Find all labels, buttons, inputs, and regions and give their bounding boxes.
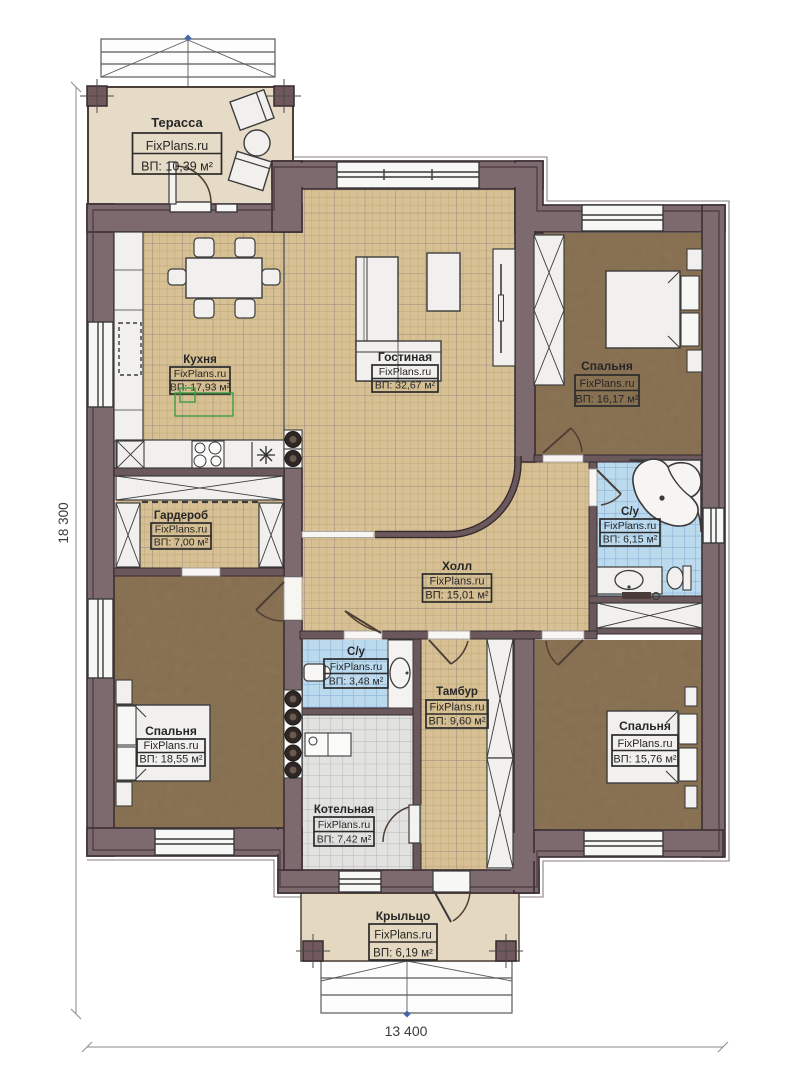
svg-text:FixPlans.ru: FixPlans.ru [330, 661, 383, 673]
svg-text:ВП: 6,19 м²: ВП: 6,19 м² [373, 948, 433, 960]
svg-text:FixPlans.ru: FixPlans.ru [604, 520, 657, 532]
svg-text:ВП: 10,39 м²: ВП: 10,39 м² [141, 160, 213, 174]
svg-text:Холл: Холл [442, 559, 472, 573]
svg-text:FixPlans.ru: FixPlans.ru [143, 740, 198, 752]
svg-text:FixPlans.ru: FixPlans.ru [374, 930, 432, 942]
svg-text:FixPlans.ru: FixPlans.ru [429, 576, 484, 588]
svg-text:FixPlans.ru: FixPlans.ru [579, 378, 634, 390]
svg-text:Спальня: Спальня [145, 724, 197, 738]
svg-text:FixPlans.ru: FixPlans.ru [318, 819, 371, 831]
svg-text:Гостиная: Гостиная [378, 350, 432, 364]
svg-text:ВП: 9,60 м²: ВП: 9,60 м² [428, 716, 485, 728]
svg-text:С/у: С/у [347, 646, 366, 658]
svg-text:Котельная: Котельная [314, 804, 374, 816]
svg-text:FixPlans.ru: FixPlans.ru [174, 368, 227, 380]
svg-text:С/у: С/у [621, 506, 640, 518]
svg-text:ВП: 7,42 м²: ВП: 7,42 м² [317, 834, 372, 846]
svg-text:FixPlans.ru: FixPlans.ru [429, 702, 484, 714]
svg-text:Спальня: Спальня [581, 359, 633, 373]
svg-text:FixPlans.ru: FixPlans.ru [146, 139, 209, 153]
svg-text:ВП: 16,17 м²: ВП: 16,17 м² [575, 394, 639, 406]
svg-text:Крыльцо: Крыльцо [376, 909, 431, 923]
svg-text:ВП: 7,00 м²: ВП: 7,00 м² [154, 537, 209, 549]
svg-text:13 400: 13 400 [385, 1023, 428, 1039]
svg-text:Терасса: Терасса [151, 115, 203, 130]
svg-text:ВП: 15,01 м²: ВП: 15,01 м² [425, 590, 489, 602]
svg-text:Тамбур: Тамбур [436, 686, 478, 698]
svg-text:ВП: 6,15 м²: ВП: 6,15 м² [603, 534, 658, 546]
svg-text:Спальня: Спальня [619, 719, 671, 733]
svg-text:FixPlans.ru: FixPlans.ru [379, 366, 432, 378]
svg-text:18 300: 18 300 [56, 502, 71, 543]
svg-text:ВП: 17,93 м²: ВП: 17,93 м² [170, 382, 231, 394]
svg-text:ВП: 32,67 м²: ВП: 32,67 м² [375, 380, 436, 392]
svg-text:FixPlans.ru: FixPlans.ru [617, 738, 672, 750]
svg-text:FixPlans.ru: FixPlans.ru [155, 524, 208, 536]
svg-text:Кухня: Кухня [183, 354, 217, 366]
svg-text:Гардероб: Гардероб [154, 510, 208, 522]
svg-text:ВП: 3,48 м²: ВП: 3,48 м² [329, 676, 384, 688]
svg-text:ВП: 18,55 м²: ВП: 18,55 м² [139, 754, 203, 766]
svg-text:ВП: 15,76 м²: ВП: 15,76 м² [613, 754, 677, 766]
